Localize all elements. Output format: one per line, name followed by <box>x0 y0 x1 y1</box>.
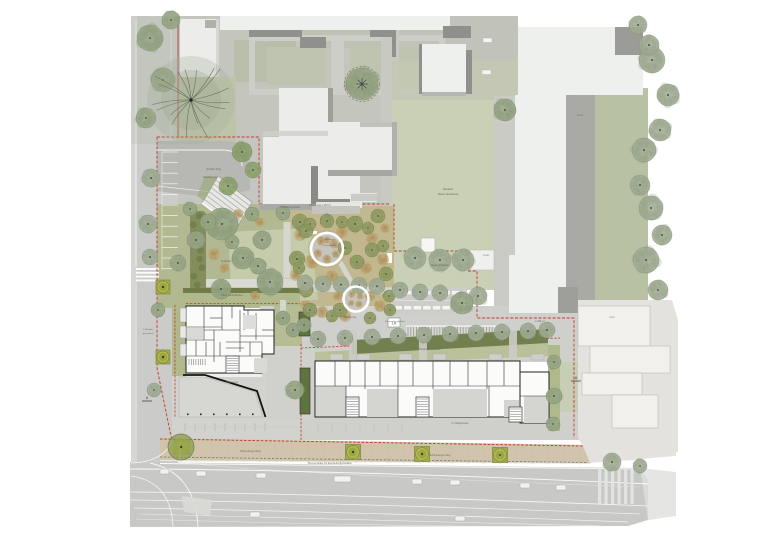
svg-text:Bestand: Bestand <box>443 187 453 191</box>
svg-text:unterirdisch: unterirdisch <box>142 332 154 335</box>
svg-text:Unterbauung: Unterbauung <box>203 176 217 179</box>
svg-text:Pflasterung 1.293 m²: Pflasterung 1.293 m² <box>309 204 331 207</box>
svg-text:Privat Gartenflächen: Privat Gartenflächen <box>221 294 243 297</box>
svg-text:278,81: 278,81 <box>483 255 490 257</box>
svg-text:Schöneberger Weg: Schöneberger Weg <box>240 450 261 453</box>
svg-text:Pflasterung: Pflasterung <box>226 381 239 384</box>
svg-text:Schöneberger Weg: Schöneberger Weg <box>430 454 451 457</box>
svg-text:Spielplatz: Spielplatz <box>221 260 232 263</box>
svg-text:278,81: 278,81 <box>577 115 584 117</box>
svg-text:Rasen Spielwiese: Rasen Spielwiese <box>438 192 459 196</box>
svg-text:1.293 m²: 1.293 m² <box>535 320 545 323</box>
svg-text:Privat Gartenflächen: Privat Gartenflächen <box>419 348 441 351</box>
svg-text:Bestandsbäume: Bestandsbäume <box>431 264 449 267</box>
svg-text:Natursteinpfl.: Natursteinpfl. <box>324 244 337 247</box>
svg-text:Brunnenstraße mit Erschließung: Brunnenstraße mit Erschließungscharakter <box>308 462 352 465</box>
svg-text:2 Behälter: 2 Behälter <box>143 328 153 331</box>
svg-text:Rasenfuge: Rasenfuge <box>325 239 336 241</box>
svg-text:Pflasterung: Pflasterung <box>344 316 357 319</box>
svg-text:Gneisbelags Band: Gneisbelags Band <box>280 206 300 209</box>
svg-text:IV Vollgeschoss: IV Vollgeschoss <box>452 422 470 425</box>
svg-text:Fahrradabstellplätze: Fahrradabstellplätze <box>385 320 406 323</box>
svg-text:Einfahrt Tiefg.: Einfahrt Tiefg. <box>207 168 222 171</box>
